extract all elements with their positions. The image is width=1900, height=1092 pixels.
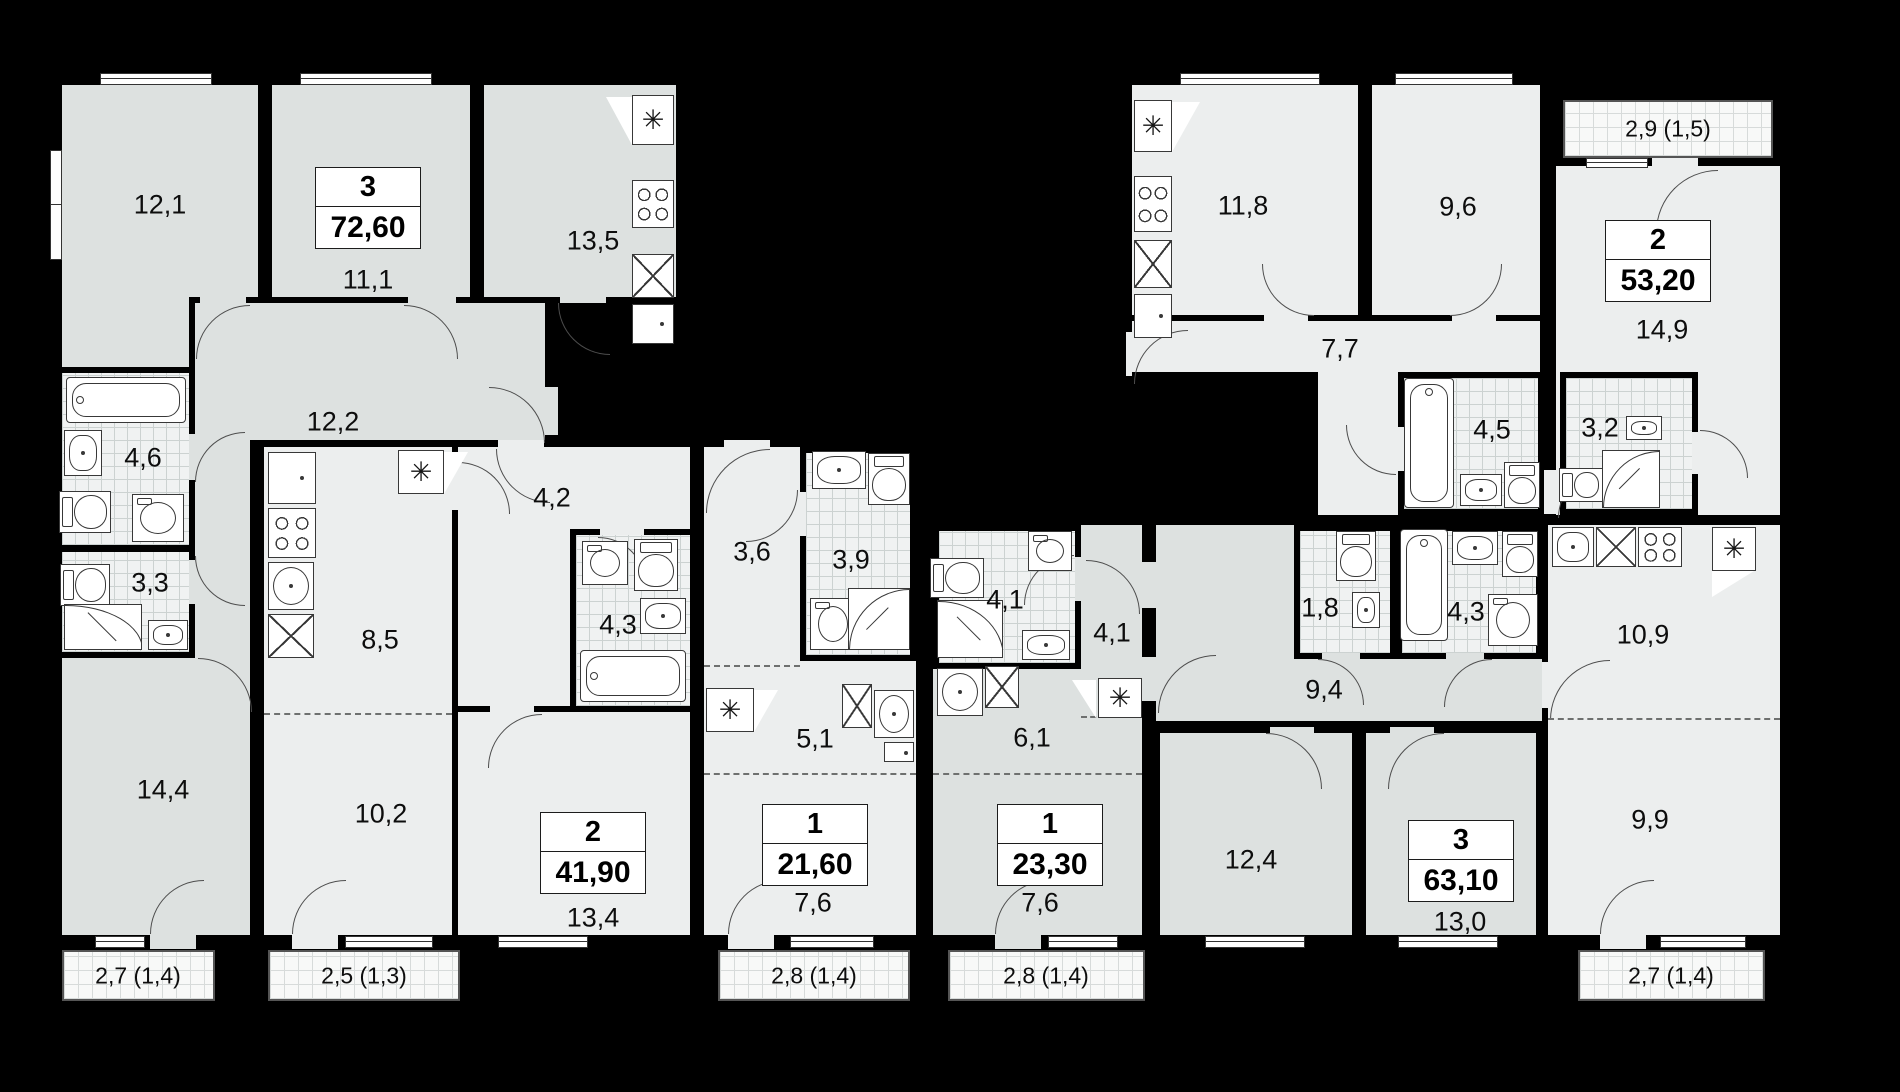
kitchen-sink-icon: [937, 668, 983, 716]
room-area-label: 1,8: [1301, 593, 1339, 624]
door-opening: [1142, 562, 1156, 608]
zone-dashed-line: [704, 665, 800, 667]
window: [498, 936, 588, 948]
cabinet-icon: [632, 304, 674, 344]
apt-e-info-box: 2 53,20: [1605, 220, 1711, 302]
room-area-label: 12,1: [134, 190, 187, 221]
apt-rooms-count: 3: [1409, 821, 1513, 860]
room-area-label: 11,1: [343, 265, 394, 296]
window: [50, 150, 62, 260]
cabinet-icon: [268, 452, 316, 504]
kitchen-sink-icon: [268, 562, 314, 610]
wall: [62, 652, 189, 658]
room-area-label: 7,6: [794, 888, 832, 919]
bathtub-icon: [66, 377, 186, 423]
balcony-door-opening: [728, 935, 774, 949]
vent-icon: [398, 450, 444, 494]
window: [1180, 73, 1320, 85]
sink-icon: [1352, 592, 1380, 628]
window: [790, 936, 874, 948]
room-area-label: 6,1: [1013, 723, 1051, 754]
zone-dashed-line: [704, 773, 916, 775]
room-area-label: 11,8: [1218, 191, 1269, 222]
apt-rooms-count: 2: [1606, 221, 1710, 260]
door-opening: [200, 652, 244, 658]
room-area-label: 9,9: [1631, 805, 1669, 836]
room-area-label: 10,2: [355, 799, 408, 830]
door-opening: [724, 440, 770, 447]
vent-icon: [1134, 100, 1172, 152]
toilet-icon: [59, 491, 111, 533]
toilet-icon: [930, 558, 984, 598]
vent-duct-icon: [1172, 102, 1200, 152]
room-area-label: 7,7: [1321, 334, 1359, 365]
vent-duct-icon: [606, 97, 632, 145]
room-area-label: 12,2: [307, 407, 360, 438]
sink-icon: [812, 451, 866, 489]
balcony-area-label: 2,8 (1,4): [771, 963, 857, 990]
door-opening: [1270, 727, 1314, 733]
room-area-label: 13,4: [567, 903, 620, 934]
room-area-label: 9,4: [1305, 675, 1343, 706]
balcony-door-opening: [292, 935, 338, 949]
kitchen-sink-icon: [874, 690, 914, 738]
window: [95, 936, 145, 948]
door-opening: [1264, 315, 1308, 321]
toilet-icon: [1336, 531, 1376, 581]
bathtub-icon: [1404, 378, 1454, 508]
room-area-label: 8,5: [361, 625, 399, 656]
door-opening: [189, 434, 195, 480]
apt-b-hall-4-2-floor: [458, 529, 570, 706]
washing-machine-icon: [1028, 531, 1072, 571]
room-area-label: 4,5: [1473, 415, 1511, 446]
window: [1660, 936, 1746, 948]
apt-total-area: 53,20: [1606, 260, 1710, 301]
wall: [62, 367, 189, 373]
door-opening: [408, 297, 456, 303]
stove-icon: [1638, 527, 1682, 567]
washing-machine-icon: [132, 494, 184, 542]
balcony-area-label: 2,9 (1,5): [1625, 116, 1711, 143]
kitchen-sink-icon: [268, 614, 314, 658]
zone-dashed-line: [933, 773, 1142, 775]
toilet-icon: [1559, 468, 1603, 502]
window: [1205, 936, 1305, 948]
apt-b-info-box: 2 41,90: [540, 812, 646, 894]
room-area-label: 4,2: [533, 483, 571, 514]
door-opening: [1446, 653, 1484, 659]
window: [100, 73, 212, 85]
washing-machine-icon: [582, 541, 628, 585]
room-area-label: 3,6: [733, 537, 771, 568]
window: [1398, 936, 1498, 948]
kitchen-sink-icon: [632, 254, 674, 298]
room-area-label: 14,9: [1636, 315, 1689, 346]
window: [1395, 73, 1513, 85]
room-area-label: 7,6: [1021, 888, 1059, 919]
room-area-label: 12,4: [1225, 845, 1278, 876]
door-opening: [545, 387, 558, 435]
apt-d-info-box: 1 23,30: [997, 804, 1103, 886]
sink-icon: [1460, 474, 1502, 506]
door-opening: [1542, 662, 1548, 708]
apt-total-area: 63,10: [1409, 860, 1513, 901]
room-area-label: 4,6: [124, 443, 162, 474]
room-area-label: 13,0: [1434, 907, 1487, 938]
stove-icon: [268, 508, 316, 558]
room-area-label: 4,3: [599, 610, 637, 641]
toilet-icon: [1502, 531, 1538, 577]
zone-dashed-line: [264, 713, 452, 715]
room-area-label: 4,1: [986, 585, 1024, 616]
stove-icon: [884, 742, 914, 762]
apt-total-area: 23,30: [998, 844, 1102, 885]
washing-machine-icon: [1488, 594, 1538, 646]
apt-f-room-12-4-floor: [1160, 733, 1352, 935]
balcony-door-opening: [1652, 158, 1698, 168]
room-area-label: 9,6: [1439, 192, 1477, 223]
apt-a-room-12-1-floor: [62, 297, 189, 367]
door-opening: [1390, 727, 1434, 733]
kitchen-sink-icon: [985, 666, 1019, 708]
toilet-icon: [868, 453, 910, 505]
door-opening: [200, 297, 246, 303]
vent-duct-icon: [1072, 680, 1096, 718]
apt-total-area: 72,60: [316, 207, 420, 248]
vent-icon: [1098, 678, 1142, 718]
balcony-door-opening: [995, 935, 1041, 949]
room-area-label: 4,3: [1447, 597, 1485, 628]
apt-rooms-count: 3: [316, 168, 420, 207]
sink-icon: [148, 620, 188, 650]
window: [300, 73, 432, 85]
toilet-icon: [60, 564, 110, 606]
sink-icon: [1452, 531, 1498, 565]
room-area-label: 10,9: [1617, 620, 1670, 651]
vent-duct-icon: [444, 452, 468, 494]
stove-icon: [632, 180, 674, 228]
room-area-label: 13,5: [567, 226, 620, 257]
balcony-area-label: 2,7 (1,4): [1628, 963, 1714, 990]
door-opening: [1142, 657, 1156, 701]
room-area-label: 3,9: [832, 545, 870, 576]
apt-a-info-box: 3 72,60: [315, 167, 421, 249]
balcony-area-label: 2,5 (1,3): [321, 963, 407, 990]
window: [1048, 936, 1118, 948]
door-opening: [800, 492, 806, 536]
room-area-label: 3,3: [131, 568, 169, 599]
window: [345, 936, 433, 948]
bathtub-icon: [1400, 529, 1448, 641]
sink-icon: [64, 430, 102, 476]
room-area-label: 14,4: [137, 775, 190, 806]
kitchen-sink-icon: [1596, 527, 1636, 567]
floor-plan: 12,1 11,1 13,5 12,2 4,6 3,3 14,4 8,5 10,…: [0, 0, 1900, 1092]
toilet-icon: [1504, 462, 1540, 508]
room-area-label: 3,2: [1581, 413, 1619, 444]
balcony-area-label: 2,7 (1,4): [95, 963, 181, 990]
sink-icon: [1552, 527, 1594, 567]
door-opening: [490, 706, 534, 712]
door-opening: [1692, 432, 1698, 474]
shower-icon: [64, 604, 142, 650]
door-opening: [600, 529, 644, 535]
kitchen-sink-icon: [1134, 240, 1172, 288]
apt-rooms-count: 1: [763, 805, 867, 844]
kitchen-sink-icon: [842, 684, 872, 728]
balcony-door-opening: [1600, 935, 1646, 949]
bathtub-icon: [580, 650, 686, 702]
apt-f-info-box: 3 63,10: [1408, 820, 1514, 902]
door-opening: [1075, 557, 1081, 601]
door-opening: [189, 560, 195, 604]
door-opening: [1544, 470, 1556, 514]
vent-icon: [706, 688, 754, 732]
apt-rooms-count: 2: [541, 813, 645, 852]
stove-icon: [1134, 176, 1172, 232]
apt-total-area: 41,90: [541, 852, 645, 893]
apt-total-area: 21,60: [763, 844, 867, 885]
door-opening: [1452, 315, 1496, 321]
zone-dashed-line: [1548, 718, 1780, 720]
vent-duct-icon: [1712, 571, 1754, 597]
wall: [62, 545, 189, 552]
vent-icon: [632, 95, 674, 145]
sink-icon: [1022, 630, 1070, 660]
shower-icon: [848, 588, 910, 650]
door-opening: [1126, 332, 1132, 376]
window: [1586, 158, 1648, 168]
apt-c-info-box: 1 21,60: [762, 804, 868, 886]
toilet-icon: [634, 539, 678, 591]
door-arc: [558, 303, 610, 355]
apt-rooms-count: 1: [998, 805, 1102, 844]
room-area-label: 5,1: [796, 724, 834, 755]
vent-icon: [1712, 527, 1756, 571]
room-area-label: 4,1: [1093, 618, 1131, 649]
cabinet-icon: [1134, 294, 1172, 338]
sink-icon: [1626, 416, 1662, 440]
shower-icon: [1602, 450, 1660, 508]
vent-duct-icon: [754, 690, 778, 732]
balcony-area-label: 2,8 (1,4): [1003, 963, 1089, 990]
balcony-door-opening: [150, 935, 196, 949]
door-opening: [1322, 653, 1360, 659]
sink-icon: [640, 598, 686, 634]
